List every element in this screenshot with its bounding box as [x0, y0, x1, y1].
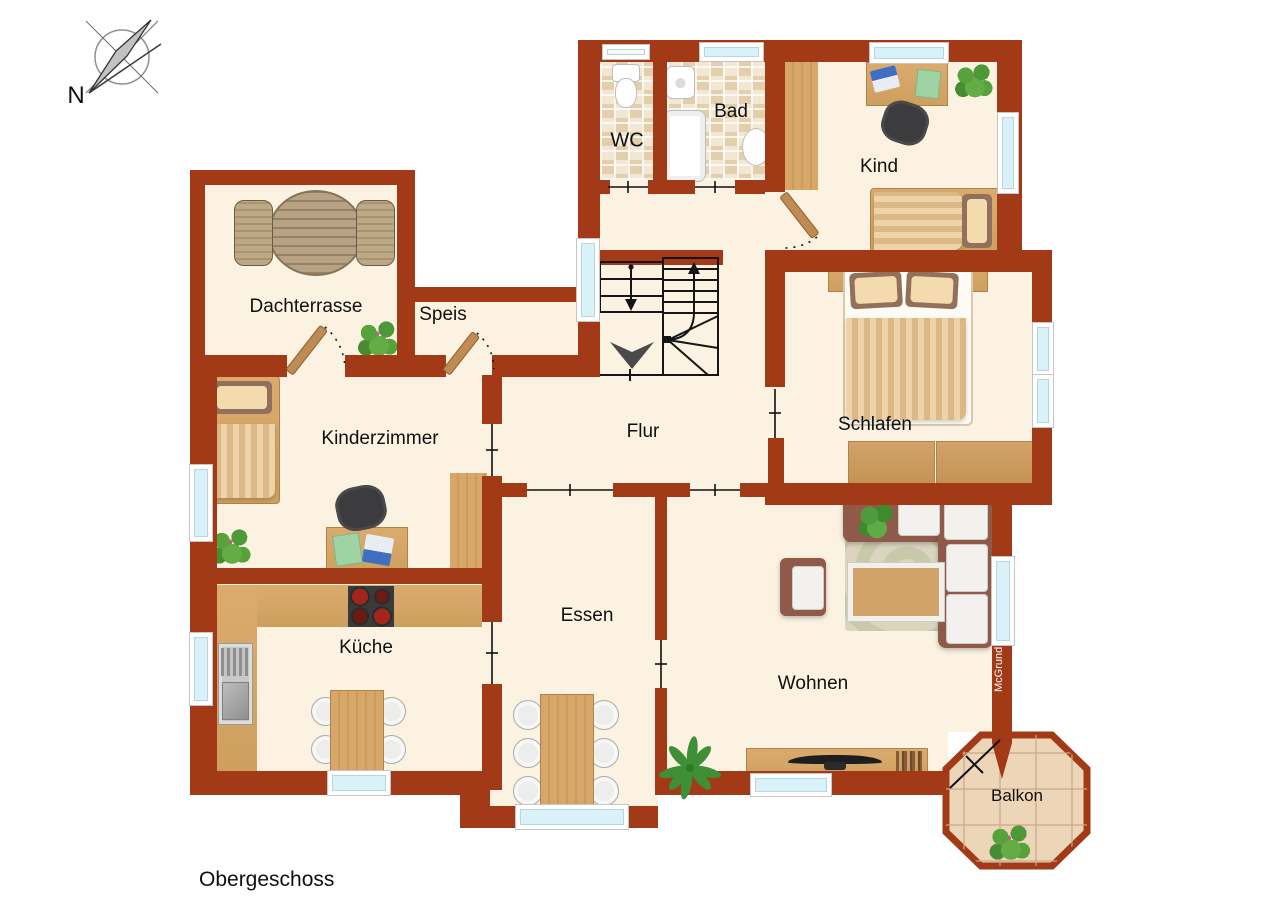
wall [613, 483, 690, 497]
dining-chair [513, 738, 543, 768]
wall [765, 250, 1052, 272]
wall [578, 318, 600, 360]
window [327, 770, 391, 796]
toilet-bowl [615, 78, 637, 108]
wall [190, 170, 205, 370]
floorplan-canvas: McGrundriss [0, 0, 1280, 905]
wall [397, 287, 600, 302]
garden-chair-right [356, 200, 395, 266]
wall [482, 476, 502, 622]
bathroom-sink-icon [666, 66, 695, 99]
room-label-wohnen: Wohnen [778, 673, 848, 695]
armchair-cushion [792, 566, 824, 610]
wall [190, 170, 405, 185]
wall [655, 497, 667, 640]
wall [190, 568, 482, 584]
green-plant-sofa [856, 500, 898, 544]
page-title: Obergeschoss [199, 868, 334, 892]
window [576, 238, 600, 322]
garden-chair-left [234, 200, 273, 266]
room-label-essen: Essen [561, 605, 614, 627]
window [750, 773, 832, 797]
wall [765, 483, 1052, 505]
kitchen-sink-basin [222, 682, 249, 720]
wall [578, 40, 600, 245]
wall [740, 483, 765, 497]
wall [582, 180, 610, 194]
room-label-bad: Bad [714, 101, 748, 123]
double-bed-blanket [846, 318, 966, 420]
sofa-cushion [946, 594, 988, 644]
window [189, 632, 213, 706]
room-label-kind: Kind [860, 156, 898, 178]
bed-kind-pillow [962, 194, 992, 248]
wall [492, 355, 600, 377]
wall [345, 355, 446, 377]
round-garden-table [268, 190, 364, 276]
wall [653, 62, 667, 182]
window [515, 804, 629, 830]
wall [765, 40, 785, 192]
dresser-right [936, 441, 1034, 485]
dining-chair [513, 700, 543, 730]
wall [397, 170, 415, 355]
wall [648, 180, 695, 194]
window [1032, 322, 1054, 376]
window [602, 44, 650, 60]
room-label-dachterrasse: Dachterrasse [250, 296, 363, 318]
wall [735, 180, 765, 194]
room-label-schlafen: Schlafen [838, 414, 912, 436]
desk-pad [915, 69, 942, 99]
kitchen-table [330, 690, 384, 777]
wall [655, 688, 667, 783]
room-label-flur: Flur [627, 421, 660, 443]
window [1032, 374, 1054, 428]
bathtub-icon [664, 110, 706, 182]
window [991, 556, 1015, 646]
coffee-table [848, 563, 944, 621]
window [869, 42, 949, 64]
wall [482, 375, 502, 424]
room-label-wc: WC [610, 130, 643, 153]
dresser-left [848, 441, 935, 485]
sofa-cushion [946, 544, 988, 592]
balcony-corner-cutout [948, 732, 1012, 794]
window [699, 42, 764, 62]
dining-chair [513, 776, 543, 806]
kitchen-sink-drainer [221, 648, 248, 676]
double-bed-pillow-right [905, 271, 959, 310]
desk-pad2 [332, 532, 363, 566]
bed-kinderzimmer-blanket [209, 424, 275, 498]
double-bed-pillow-left [849, 271, 903, 310]
room-label-speis: Speis [419, 304, 467, 326]
wardrobe-kind [785, 62, 818, 190]
floor-flur-lower [487, 360, 600, 490]
bed-kind-blanket [874, 192, 962, 250]
flower-plant-kind [953, 60, 995, 104]
compass-rose [86, 20, 161, 93]
window [189, 464, 213, 542]
flower-plant-balcony [986, 820, 1034, 868]
stove-icon [348, 586, 394, 627]
wall [582, 250, 723, 265]
room-label-kinderzimmer: Kinderzimmer [321, 428, 438, 450]
laptop2-icon [362, 534, 394, 566]
window [997, 112, 1019, 194]
dining-table [540, 694, 594, 808]
room-label-balkon: Balkon [991, 786, 1043, 806]
room-label-kueche: Küche [339, 637, 393, 659]
bed-kinderzimmer-pillow [212, 381, 272, 414]
compass-north-label: N [67, 82, 84, 110]
tv-stand [824, 762, 846, 770]
wall [768, 438, 784, 485]
